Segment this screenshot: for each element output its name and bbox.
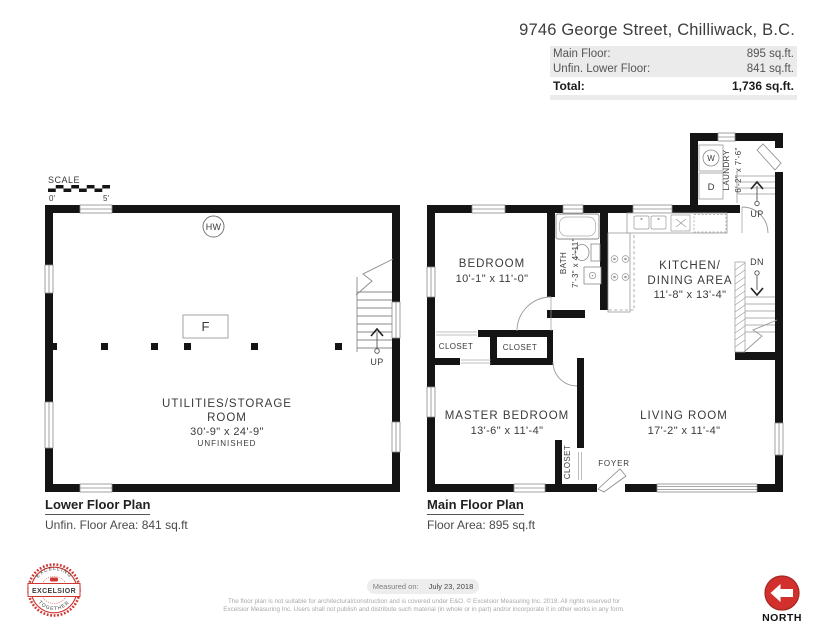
main-plan-subtitle: Floor Area: 895 sq.ft <box>427 518 535 532</box>
front-door <box>598 469 626 492</box>
area-total-row: Total: 1,736 sq.ft. <box>550 77 797 95</box>
up-label: UP <box>750 209 763 219</box>
kitchen-label: KITCHEN/ <box>659 260 721 272</box>
down-stairs: DN <box>735 257 777 352</box>
area-row-label: Main Floor: <box>553 47 611 62</box>
north-arrow-icon <box>763 574 801 612</box>
page-title: 9746 George Street, Chilliwack, B.C. <box>519 21 795 40</box>
support-posts <box>53 343 342 350</box>
closet-label: CLOSET <box>439 342 473 351</box>
toilet-tank <box>591 244 600 261</box>
disclaimer: The floor plan is not suitable for archi… <box>114 598 734 613</box>
bath-dims: 7'-3" x 4'-11" <box>571 238 580 288</box>
bedroom-door <box>517 297 551 331</box>
kitchen-dims: 11'-8" x 13'-4" <box>654 289 727 301</box>
bedroom-dims: 10'-1" x 11'-0" <box>456 273 529 285</box>
stair-break-line <box>356 259 393 295</box>
laundry-fixtures: W D <box>699 145 723 199</box>
floor-plan-sheet: 9746 George Street, Chilliwack, B.C. Mai… <box>0 0 828 640</box>
utilities-room-label: UTILITIES/STORAGE ROOM 30'-9" x 24'-9" U… <box>162 398 292 448</box>
area-summary: Main Floor: 895 sq.ft. Unfin. Lower Floo… <box>550 46 797 100</box>
badge-emblem <box>50 578 58 582</box>
master-door <box>553 362 577 386</box>
area-total-value: 1,736 sq.ft. <box>732 78 794 94</box>
lower-walls <box>45 205 400 492</box>
scale-start: 0' <box>49 194 55 203</box>
stairwell-wall <box>735 352 783 360</box>
room-name: UTILITIES/STORAGE <box>162 398 292 410</box>
area-summary-rows: Main Floor: 895 sq.ft. Unfin. Lower Floo… <box>550 46 797 77</box>
svg-text:TOGETHER: TOGETHER <box>37 600 71 612</box>
master-wall <box>577 358 584 448</box>
scale-bar: SCALE 0' 5' <box>48 175 110 203</box>
up-label: UP <box>370 357 383 367</box>
living-dims: 17'-2" x 11'-4" <box>648 425 721 437</box>
furnace: F <box>183 315 228 338</box>
laundry-label: LAUNDRY <box>722 149 731 190</box>
area-total-label: Total: <box>553 78 585 94</box>
measured-on-label: Measured on: <box>373 582 419 591</box>
area-row-value: 895 sq.ft. <box>747 47 794 62</box>
disclaimer-line2: Excelsior Measuring Inc. Users shall not… <box>114 606 734 614</box>
area-row: Unfin. Lower Floor: 841 sq.ft. <box>553 62 794 77</box>
disclaimer-line1: The floor plan is not suitable for archi… <box>114 598 734 606</box>
main-floor-plan: UP DN <box>420 126 800 496</box>
measured-on-pill: Measured on: July 23, 2018 <box>367 579 479 594</box>
hw-label: HW <box>206 222 222 232</box>
closet-label: CLOSET <box>563 445 572 479</box>
measured-on-value: July 23, 2018 <box>429 582 474 591</box>
lower-plan-subtitle: Unfin. Floor Area: 841 sq.ft <box>45 518 188 532</box>
bedroom-wall <box>547 213 555 297</box>
badge-bottom-text: TOGETHER <box>37 600 71 612</box>
bath-wall <box>600 213 608 310</box>
bath-label: BATH <box>559 252 568 274</box>
scale-end: 5' <box>103 194 109 203</box>
badge-center-text: EXCELSIOR <box>32 588 76 595</box>
area-row-label: Unfin. Lower Floor: <box>553 62 650 77</box>
room-dims: 30'-9" x 24'-9" <box>190 426 264 438</box>
scale-label: SCALE <box>48 175 80 185</box>
lower-plan-title: Lower Floor Plan <box>45 497 150 515</box>
area-row-value: 841 sq.ft. <box>747 62 794 77</box>
lower-windows <box>45 205 400 492</box>
lower-floor-plan: SCALE 0' 5' <box>30 168 415 536</box>
laundry-dims: 6'-2" x 7'-6" <box>734 147 743 193</box>
main-plan-title: Main Floor Plan <box>427 497 524 515</box>
washer-label: W <box>707 154 715 163</box>
furnace-label: F <box>202 319 210 334</box>
excelsior-badge: EXCELLING TOGETHER EXCELSIOR <box>26 562 82 618</box>
room-name: ROOM <box>207 412 247 424</box>
dryer-label: D <box>708 182 715 193</box>
kitchen-label2: DINING AREA <box>647 275 732 287</box>
area-row: Main Floor: 895 sq.ft. <box>553 47 794 62</box>
dn-label: DN <box>750 257 764 267</box>
bathtub <box>556 214 599 239</box>
hot-water-tank: HW <box>203 216 224 237</box>
master-label: MASTER BEDROOM <box>445 410 570 422</box>
foyer-label: FOYER <box>598 459 630 468</box>
living-label: LIVING ROOM <box>640 410 728 422</box>
divider <box>550 95 797 100</box>
lower-stairs <box>356 259 393 352</box>
room-note: UNFINISHED <box>198 439 257 448</box>
bedroom-label: BEDROOM <box>459 258 525 270</box>
master-dims: 13'-6" x 11'-4" <box>471 425 544 437</box>
north-label: NORTH <box>757 612 807 624</box>
closet-label: CLOSET <box>503 343 537 352</box>
